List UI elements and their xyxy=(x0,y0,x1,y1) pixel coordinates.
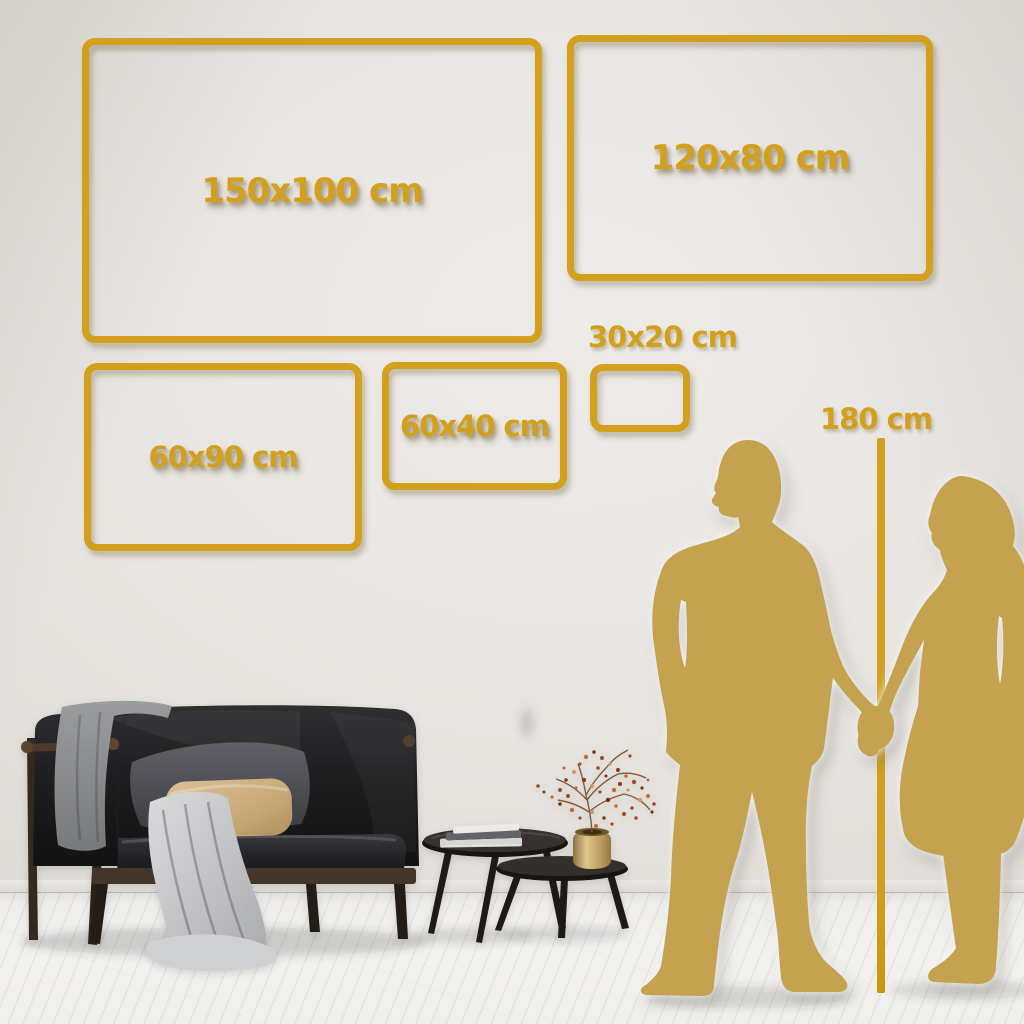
woman-silhouette xyxy=(858,476,1024,857)
table-leg xyxy=(607,874,629,929)
man-silhouette xyxy=(641,440,894,996)
clasped-hands xyxy=(858,706,895,750)
sofa-rail xyxy=(92,868,416,884)
woman-leg xyxy=(928,846,1001,984)
sofa xyxy=(21,701,452,971)
table-leg xyxy=(495,876,521,931)
sofa-leg xyxy=(306,884,320,932)
armrest-knob xyxy=(403,735,415,747)
sofa-leg xyxy=(394,884,408,939)
brass-vase xyxy=(573,828,611,869)
couple-silhouette xyxy=(641,440,1024,996)
table-leg xyxy=(428,852,452,934)
size-guide-image: 150x100 cm 120x80 cm 60x90 cm 60x40 cm 3… xyxy=(0,0,1024,1024)
coffee-tables xyxy=(422,750,656,943)
room-scene xyxy=(0,0,1024,1024)
books-stack xyxy=(440,823,522,847)
